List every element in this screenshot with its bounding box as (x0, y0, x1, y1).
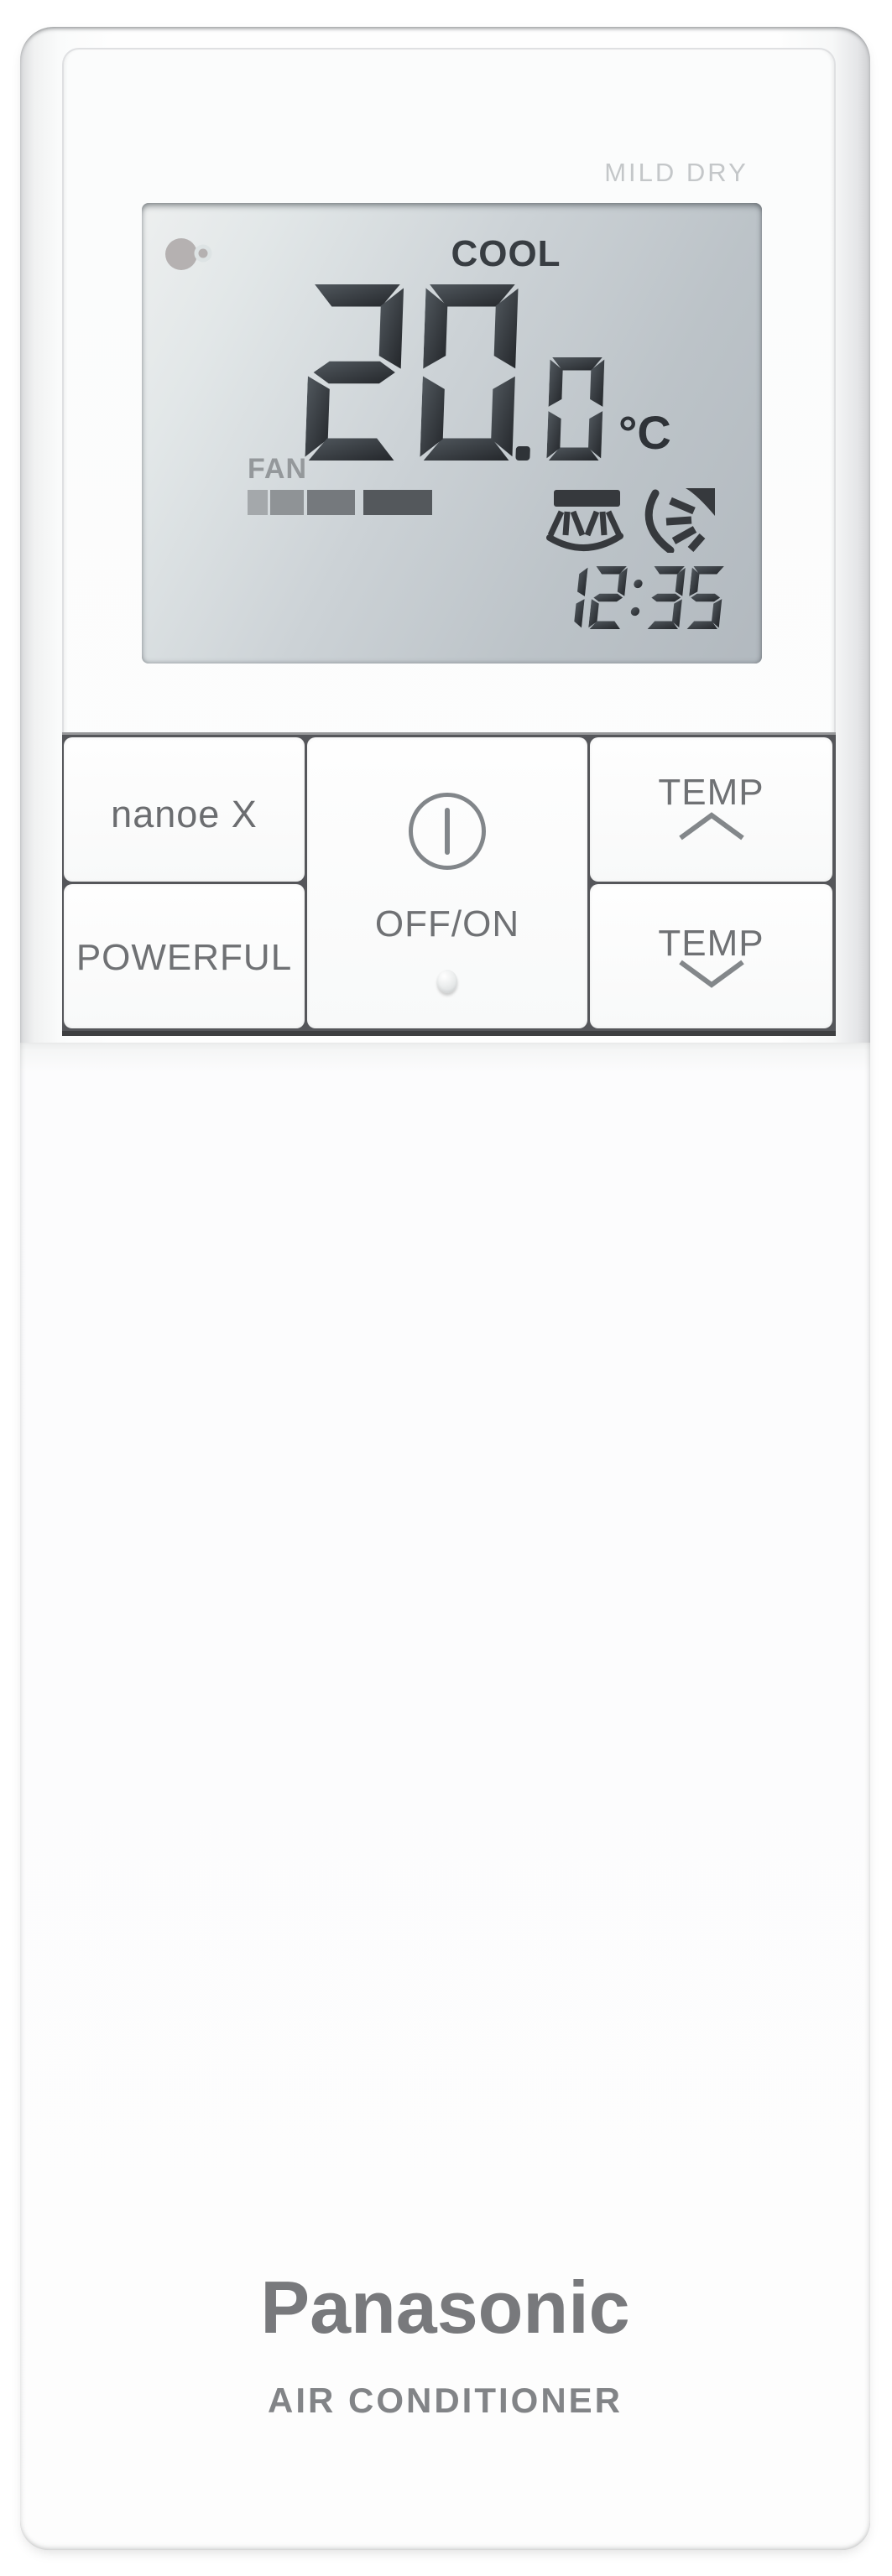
fan-label: FAN (248, 453, 307, 486)
power-icon (409, 793, 486, 870)
temperature-unit: °C (618, 405, 671, 460)
brand-logo: Panasonic (20, 2265, 870, 2350)
temperature-display (305, 284, 607, 461)
temp-down-button[interactable]: TEMP (590, 884, 832, 1028)
button-panel: nanoe X POWERFUL OFF/ON TEMP TEMP (62, 732, 836, 1036)
nanoe-button-label: nanoe X (64, 793, 305, 836)
powerful-button[interactable]: POWERFUL (64, 884, 305, 1028)
vertical-airflow-swing-icon (545, 490, 624, 552)
chevron-down-icon (678, 960, 745, 988)
fan-level-bars (248, 490, 449, 515)
power-button[interactable]: OFF/ON (307, 737, 587, 1028)
transmitter-led (437, 970, 457, 993)
remote-body: MILD DRY COOL °C FAN (20, 27, 870, 2550)
lcd-screen: COOL °C FAN (142, 203, 762, 664)
product-label: AIR CONDITIONER (20, 2381, 870, 2421)
chevron-up-icon (678, 812, 745, 840)
nanoe-button[interactable]: nanoe X (64, 737, 305, 882)
mild-dry-label: MILD DRY (592, 158, 760, 188)
nanoe-icon (162, 235, 214, 273)
temp-down-label: TEMP (590, 923, 832, 965)
mode-label: COOL (422, 233, 590, 275)
horizontal-airflow-swing-icon (644, 488, 719, 553)
temp-up-button[interactable]: TEMP (590, 737, 832, 882)
product-image: MILD DRY COOL °C FAN (0, 0, 892, 2576)
power-button-label: OFF/ON (307, 903, 587, 945)
clock-display (566, 566, 725, 629)
powerful-button-label: POWERFUL (64, 937, 305, 979)
temp-up-label: TEMP (590, 772, 832, 814)
